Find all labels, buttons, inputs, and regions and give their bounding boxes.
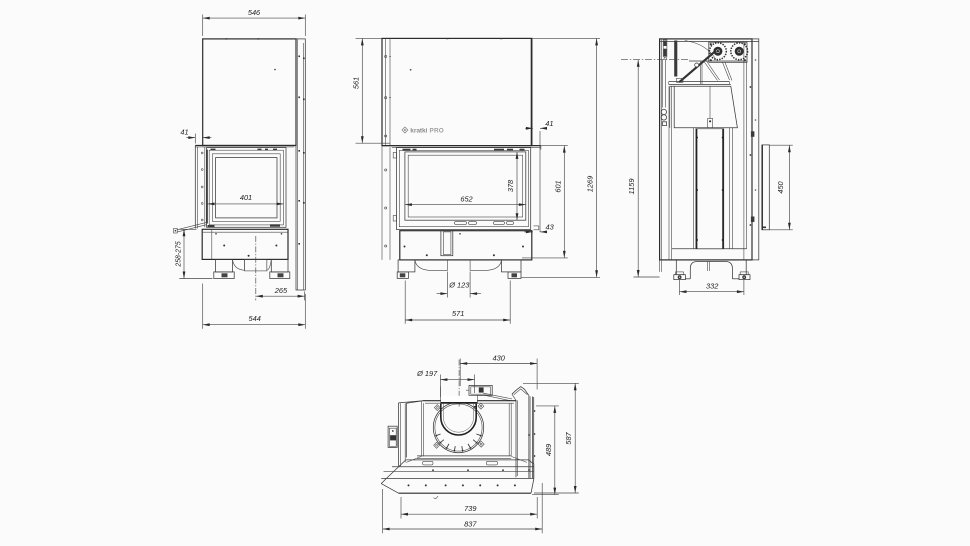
svg-text:1159: 1159 [627, 179, 636, 195]
svg-text:489: 489 [544, 444, 553, 456]
svg-text:258-275: 258-275 [175, 241, 182, 267]
svg-text:332: 332 [706, 282, 718, 291]
svg-text:544: 544 [249, 314, 261, 323]
svg-text:430: 430 [493, 353, 506, 362]
svg-text:41: 41 [545, 119, 553, 128]
svg-text:Ø 197: Ø 197 [416, 369, 438, 378]
svg-text:571: 571 [452, 309, 464, 318]
svg-text:837: 837 [464, 519, 477, 528]
svg-text:PRO: PRO [430, 127, 444, 134]
svg-text:546: 546 [248, 8, 261, 17]
svg-text:1269: 1269 [586, 176, 595, 192]
svg-text:Ø 123: Ø 123 [448, 280, 470, 289]
svg-text:450: 450 [776, 180, 785, 193]
svg-text:739: 739 [464, 504, 476, 513]
svg-text:601: 601 [554, 180, 563, 192]
svg-text:587: 587 [564, 431, 573, 444]
svg-text:401: 401 [240, 193, 252, 202]
svg-text:41: 41 [180, 128, 188, 137]
svg-text:561: 561 [352, 77, 361, 89]
svg-text:652: 652 [460, 195, 472, 204]
svg-text:265: 265 [274, 286, 288, 295]
svg-text:378: 378 [506, 179, 515, 192]
svg-text:kratki: kratki [410, 127, 427, 134]
svg-text:43: 43 [546, 223, 555, 232]
